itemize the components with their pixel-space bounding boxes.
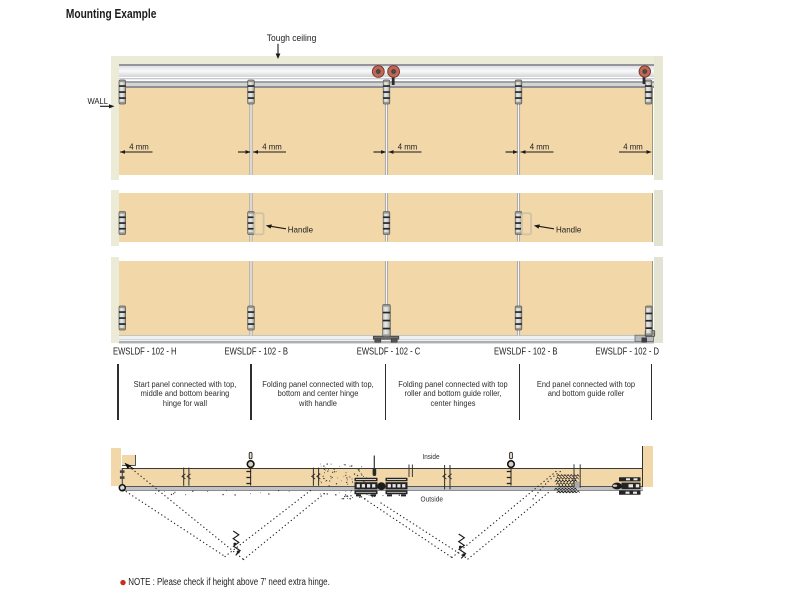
svg-text:EWSLDF - 102 - H: EWSLDF - 102 - H (113, 347, 177, 358)
svg-text:4 mm: 4 mm (129, 142, 149, 151)
svg-text:Outside: Outside (421, 495, 444, 504)
svg-text:WALL: WALL (88, 96, 109, 106)
svg-text:EWSLDF - 102 - B: EWSLDF - 102 - B (494, 347, 558, 358)
svg-text:EWSLDF - 102 - D: EWSLDF - 102 - D (596, 347, 660, 358)
svg-text:4 mm: 4 mm (398, 142, 418, 151)
svg-text:EWSLDF - 102 - C: EWSLDF - 102 - C (357, 347, 421, 358)
svg-text:Tough ceiling: Tough ceiling (267, 33, 317, 43)
svg-text:EWSLDF - 102 - B: EWSLDF - 102 - B (225, 347, 289, 358)
svg-text:Inside: Inside (423, 452, 440, 461)
svg-text:NOTE : Please check if height: NOTE : Please check if height above 7’ n… (128, 577, 329, 588)
svg-text:4 mm: 4 mm (530, 142, 550, 151)
svg-text:Mounting Example: Mounting Example (66, 7, 157, 21)
svg-text:Handle: Handle (288, 225, 314, 235)
svg-text:4 mm: 4 mm (623, 142, 643, 151)
svg-text:4 mm: 4 mm (262, 142, 282, 151)
svg-text:Handle: Handle (556, 225, 582, 235)
